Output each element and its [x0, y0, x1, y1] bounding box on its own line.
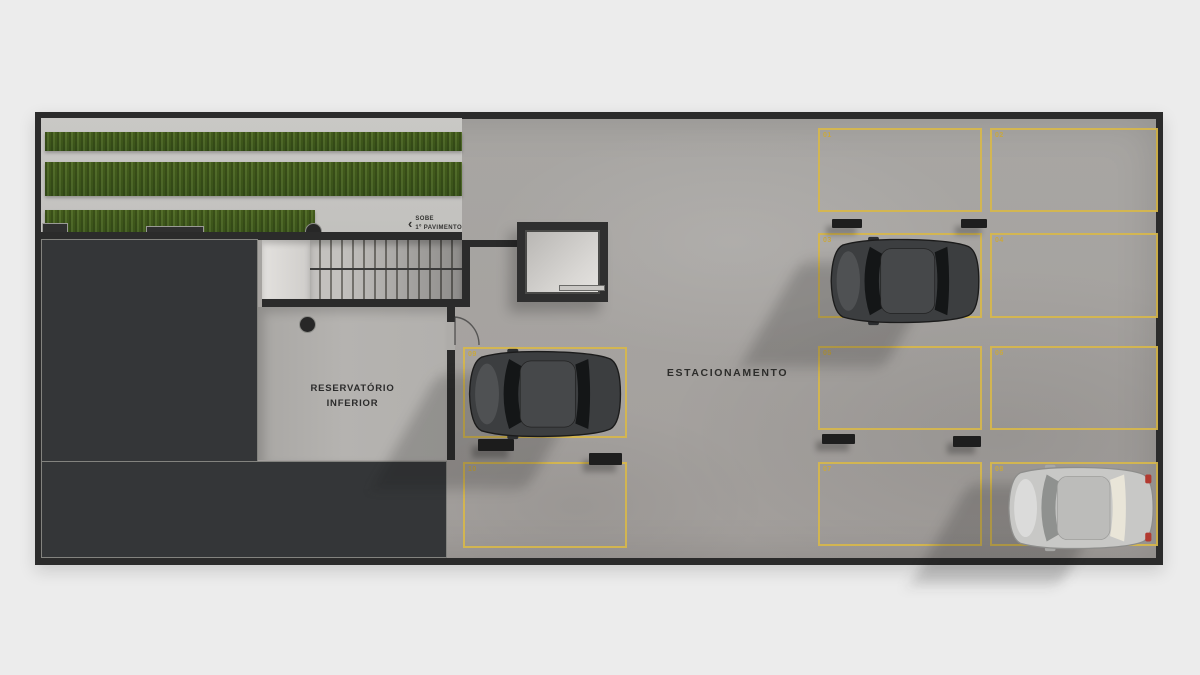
wall — [470, 240, 517, 247]
door-swing-arc — [453, 315, 481, 347]
wheel-stop — [953, 436, 981, 447]
wheel-stop — [589, 453, 622, 465]
reservoir-line1: RESERVATÓRIO — [310, 383, 394, 394]
parking-space-02: 02 — [990, 128, 1158, 212]
dark-room-seam-patch — [43, 463, 256, 556]
stair-landing — [262, 240, 310, 299]
space-number: 07 — [823, 466, 832, 473]
car-top-view — [998, 464, 1164, 552]
staircase — [262, 240, 462, 299]
elevator-shaft — [517, 222, 608, 302]
stair-handrail — [310, 268, 462, 270]
structural-column — [299, 316, 316, 333]
elevator-door — [559, 285, 605, 291]
wheel-stop — [832, 219, 862, 228]
car-top-view — [460, 348, 630, 440]
parking-space-06: 06 — [990, 346, 1158, 430]
space-number: 04 — [995, 237, 1004, 244]
floor-plan: ‹ SOBE 1º PAVIMENTO RESERVATÓRIO INFERIO… — [35, 112, 1163, 565]
page-background: { "page": { "background": "#ececec" }, "… — [0, 0, 1200, 675]
grass-strip — [45, 162, 462, 196]
wall — [462, 240, 470, 307]
car-dark-suv-space-09 — [460, 348, 630, 440]
stairs-line2: 1º PAVIMENTO — [415, 225, 462, 231]
space-number: 02 — [995, 132, 1004, 139]
grass-strip — [45, 132, 462, 151]
elevator-cab — [525, 230, 600, 294]
reservoir-line2: INFERIOR — [327, 398, 379, 409]
car-silver-sedan-space-08 — [998, 464, 1164, 552]
stairs-line1: SOBE — [415, 216, 434, 222]
stairs-text: SOBE 1º PAVIMENTO — [415, 215, 462, 232]
parking-space-04: 04 — [990, 233, 1158, 318]
stairs-direction-label: ‹ SOBE 1º PAVIMENTO — [408, 215, 462, 232]
wheel-stop — [961, 219, 987, 228]
reservoir-label: RESERVATÓRIO INFERIOR — [310, 382, 394, 411]
wheel-stop — [822, 434, 855, 444]
garden-area — [41, 118, 462, 232]
parking-space-01: 01 — [818, 128, 982, 212]
space-number: 06 — [995, 350, 1004, 357]
space-number: 01 — [823, 132, 832, 139]
wall — [262, 299, 470, 307]
car-top-view — [822, 236, 988, 326]
car-dark-suv-space-03 — [822, 236, 988, 326]
up-chevron-icon: ‹ — [408, 219, 412, 229]
parking-area-label: ESTACIONAMENTO — [625, 367, 830, 379]
